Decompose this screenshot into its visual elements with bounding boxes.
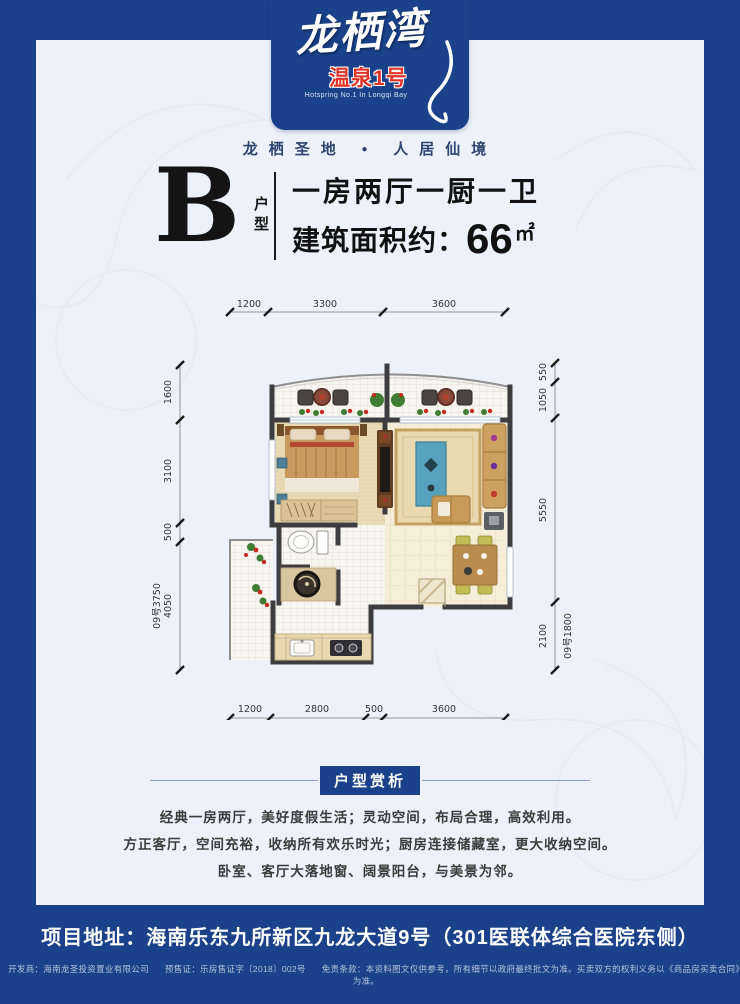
welcome-mat xyxy=(419,579,445,603)
header-line-left xyxy=(150,780,318,781)
dim-right-2: 1050 xyxy=(538,368,550,432)
slogan-left: 龙栖圣地 xyxy=(243,142,347,158)
dim-left-2: 3100 xyxy=(163,439,175,503)
header-line-right xyxy=(422,780,590,781)
dim-left-4: 4050 xyxy=(163,574,175,638)
dim-top-3: 3600 xyxy=(412,299,476,311)
brand-english: Hotspring No.1 In Longqi Bay xyxy=(271,92,441,99)
dim-bottom-2: 2800 xyxy=(285,704,349,716)
bedroom-furniture xyxy=(277,424,367,521)
dim-top-2: 3300 xyxy=(293,299,357,311)
poster-page: 龙栖圣地 ● 人居仙境 B 户型 一房两厅一厨一卫 建筑面积约：66㎡ xyxy=(0,0,740,1004)
heading-divider xyxy=(274,172,276,260)
analysis-title: 户型赏析 xyxy=(320,766,420,795)
dim-left-3: 500 xyxy=(163,500,175,564)
dim-top-1: 1200 xyxy=(217,299,281,311)
dim-right-inner: 09号1800 xyxy=(560,604,572,668)
dim-left-1: 1600 xyxy=(163,360,175,424)
analysis-paragraph: 经典一房两厅，美好度假生活；灵动空间，布局合理，高效利用。 方正客厅，空间充裕，… xyxy=(36,804,704,885)
dim-right-3: 5550 xyxy=(538,478,550,542)
brand-subname: 温泉1号 xyxy=(329,62,408,92)
brand-slogan: 龙栖圣地 ● 人居仙境 xyxy=(36,138,704,159)
unit-letter: B xyxy=(154,160,240,254)
dim-bottom-4: 3600 xyxy=(412,704,476,716)
dim-right-4: 2100 xyxy=(538,604,550,668)
dining-set xyxy=(453,536,497,594)
developer-info: 开发商：海南龙圣投资置业有限公司 xyxy=(8,964,149,974)
unit-rooms-line: 一房两厅一厨一卫 xyxy=(292,170,540,210)
disclaimer-info: 免责条款：本资料图文仅供参考，所有细节以政府最终批文为准。买卖双方的权利义务以《… xyxy=(322,964,740,986)
unit-description: 一房两厅一厨一卫 建筑面积约：66㎡ xyxy=(292,170,540,263)
unit-type-label: 户型 xyxy=(250,196,271,236)
analysis-line-2: 方正客厅，空间充裕，收纳所有欢乐时光；厨房连接储藏室，更大收纳空间。 xyxy=(36,831,704,858)
content-panel: 龙栖圣地 ● 人居仙境 B 户型 一房两厅一厨一卫 建筑面积约：66㎡ xyxy=(36,40,704,905)
brand-logo-badge: 龙栖湾 温泉1号 Hotspring No.1 In Longqi Bay xyxy=(271,0,469,130)
kitchen-counter xyxy=(275,634,371,660)
slogan-separator-icon: ● xyxy=(361,144,378,155)
footer-bar: 项目地址：海南乐东九所新区九龙大道9号（301医联体综合医院东侧） 开发商：海南… xyxy=(0,905,740,1004)
area-unit: ㎡ xyxy=(515,223,536,245)
unit-area-line: 建筑面积约：66㎡ xyxy=(292,215,540,263)
project-address: 项目地址：海南乐东九所新区九龙大道9号（301医联体综合医院东侧） xyxy=(0,921,740,950)
floor-plan-drawing xyxy=(150,300,570,720)
area-label: 建筑面积约： xyxy=(292,225,466,256)
analysis-line-3: 卧室、客厅大落地窗、阔景阳台，与美景为邻。 xyxy=(36,858,704,885)
floor-plan: 1200 3300 3600 1200 2800 500 3600 1600 3… xyxy=(150,300,570,720)
fine-print: 开发商：海南龙圣投资置业有限公司预售证：乐房售证字〔2018〕002号免责条款：… xyxy=(0,963,740,987)
area-value: 66 xyxy=(466,215,513,262)
dim-left-outer: 09号3750 xyxy=(149,574,161,638)
dim-bottom-3: 500 xyxy=(342,704,406,716)
analysis-line-1: 经典一房两厅，美好度假生活；灵动空间，布局合理，高效利用。 xyxy=(36,804,704,831)
slogan-right: 人居仙境 xyxy=(393,142,497,158)
living-room-furniture xyxy=(396,424,506,530)
logo-swoosh-icon xyxy=(419,40,459,130)
analysis-header: 户型赏析 xyxy=(36,766,704,795)
dim-bottom-1: 1200 xyxy=(218,704,282,716)
permit-info: 预售证：乐房售证字〔2018〕002号 xyxy=(165,964,306,974)
tv-cabinet xyxy=(377,430,393,508)
